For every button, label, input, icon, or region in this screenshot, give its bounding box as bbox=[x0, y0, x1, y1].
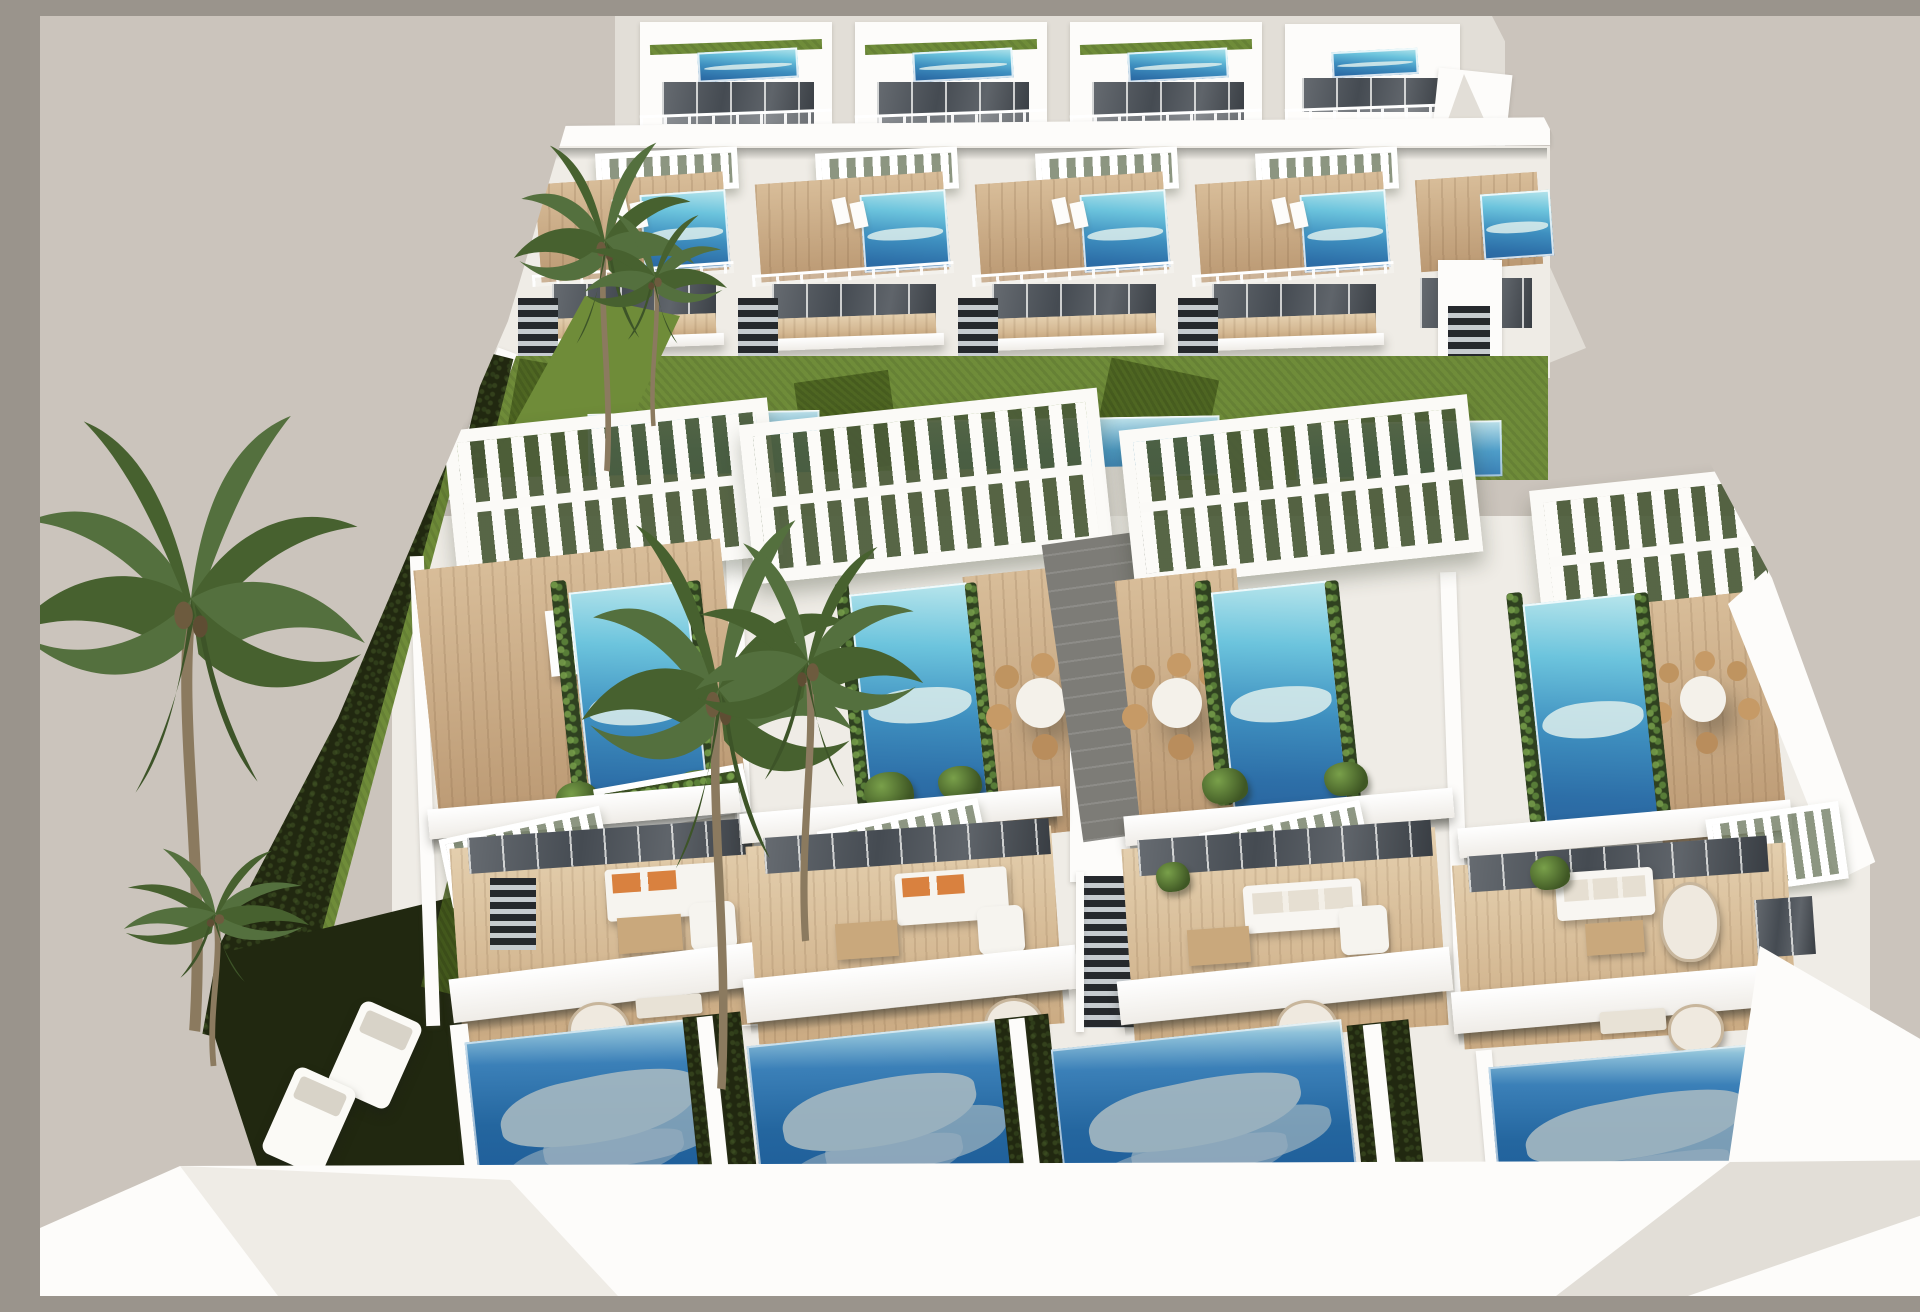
stairs bbox=[490, 878, 536, 950]
palm-tree-icon bbox=[118, 831, 313, 1066]
mid-villa-4-pool bbox=[1299, 189, 1390, 273]
plant bbox=[1202, 768, 1248, 804]
outdoor-kitchen bbox=[1754, 896, 1816, 958]
table-round bbox=[1680, 676, 1726, 722]
coffee bbox=[1585, 920, 1645, 956]
hanging-chair bbox=[1660, 882, 1720, 962]
plant bbox=[1530, 856, 1570, 890]
table-round bbox=[1016, 678, 1066, 728]
villa-3-ground-pool bbox=[1051, 1019, 1357, 1203]
pool bbox=[1331, 48, 1418, 78]
plant bbox=[1156, 862, 1190, 892]
top-villa-2-pool bbox=[912, 47, 1013, 82]
palm-tree-icon bbox=[688, 511, 928, 941]
top-villa-1-pool bbox=[697, 47, 798, 82]
wall bbox=[1076, 872, 1084, 1032]
plant bbox=[1324, 762, 1368, 796]
mid-villa-3-pool bbox=[1079, 189, 1170, 273]
villa-development-render bbox=[40, 16, 1920, 1296]
armchair bbox=[1338, 904, 1389, 955]
palm-tree-icon bbox=[580, 196, 730, 426]
pool bbox=[1480, 190, 1554, 261]
coffee bbox=[1187, 926, 1251, 966]
bench bbox=[1599, 1008, 1666, 1035]
mid-villa-2-pool bbox=[859, 189, 950, 273]
top-villa-3-pool bbox=[1127, 47, 1228, 82]
table-round bbox=[1152, 678, 1202, 728]
armchair bbox=[976, 904, 1025, 955]
villa-4-ground-pool bbox=[1488, 1041, 1799, 1209]
